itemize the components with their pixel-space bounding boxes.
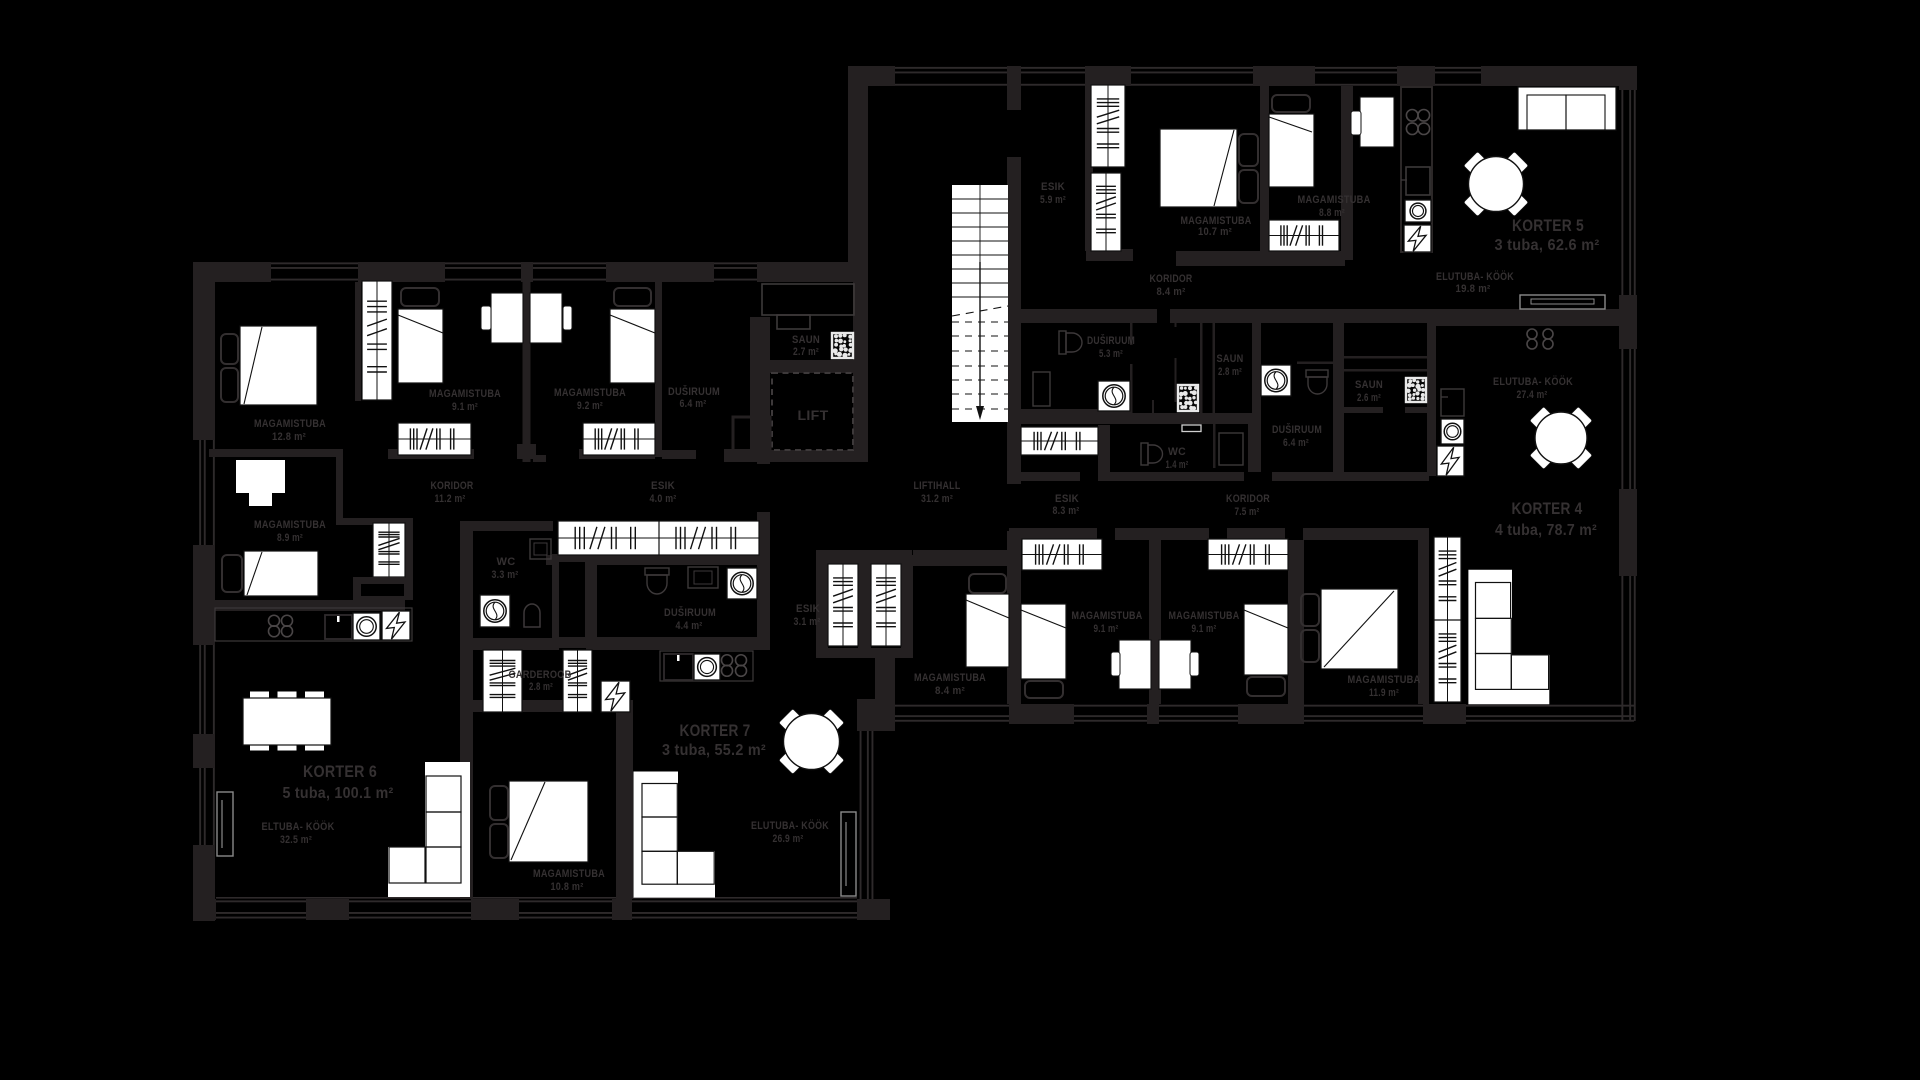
svg-text:3.3 m²: 3.3 m² (492, 569, 519, 581)
svg-text:8.4 m²: 8.4 m² (1157, 286, 1186, 298)
svg-text:11.2 m²: 11.2 m² (435, 493, 466, 505)
svg-text:11.9 m²: 11.9 m² (1369, 687, 1399, 699)
svg-text:10.7 m²: 10.7 m² (1198, 226, 1232, 238)
svg-text:DUŠIRUUM: DUŠIRUUM (664, 606, 716, 619)
svg-text:8.4 m²: 8.4 m² (935, 685, 965, 697)
svg-text:8.8 m²: 8.8 m² (1319, 207, 1345, 219)
svg-text:LIFT: LIFT (798, 408, 829, 423)
svg-text:KORIDOR: KORIDOR (431, 480, 474, 492)
svg-text:26.9 m²: 26.9 m² (773, 833, 804, 845)
svg-text:MAGAMISTUBA: MAGAMISTUBA (1298, 194, 1371, 206)
svg-text:6.4 m²: 6.4 m² (1283, 437, 1309, 449)
svg-text:MAGAMISTUBA: MAGAMISTUBA (914, 672, 986, 684)
svg-text:2.8 m²: 2.8 m² (529, 681, 553, 693)
svg-text:WC: WC (1168, 446, 1186, 458)
svg-text:WC: WC (497, 556, 516, 568)
svg-text:KORTER 6: KORTER 6 (303, 763, 377, 781)
svg-text:12.8 m²: 12.8 m² (272, 431, 306, 443)
svg-text:SAUN: SAUN (1217, 353, 1244, 365)
svg-text:ESIK: ESIK (796, 603, 820, 615)
svg-text:5.9 m²: 5.9 m² (1040, 194, 1066, 206)
svg-text:ELTUBA- KÖÖK: ELTUBA- KÖÖK (262, 820, 335, 833)
svg-text:ESIK: ESIK (651, 480, 675, 492)
svg-text:4 tuba, 78.7 m²: 4 tuba, 78.7 m² (1495, 522, 1597, 539)
svg-text:32.5 m²: 32.5 m² (280, 834, 312, 846)
svg-text:31.2 m²: 31.2 m² (921, 493, 953, 505)
svg-text:10.8 m²: 10.8 m² (551, 881, 584, 893)
svg-text:9.1 m²: 9.1 m² (1094, 623, 1119, 635)
svg-text:4.4 m²: 4.4 m² (676, 620, 703, 632)
svg-text:ELUTUBA- KÖÖK: ELUTUBA- KÖÖK (1436, 270, 1514, 283)
svg-text:9.2 m²: 9.2 m² (577, 400, 603, 412)
svg-text:GARDEROOB: GARDEROOB (509, 669, 572, 681)
svg-text:KORIDOR: KORIDOR (1226, 493, 1270, 505)
svg-text:KORTER 7: KORTER 7 (680, 722, 751, 740)
svg-text:6.4 m²: 6.4 m² (680, 398, 707, 410)
svg-text:MAGAMISTUBA: MAGAMISTUBA (1169, 610, 1240, 622)
svg-text:MAGAMISTUBA: MAGAMISTUBA (254, 418, 326, 430)
svg-text:ELUTUBA- KÖÖK: ELUTUBA- KÖÖK (1493, 375, 1573, 388)
svg-text:DUŠIRUUM: DUŠIRUUM (1087, 334, 1135, 347)
svg-text:5 tuba, 100.1 m²: 5 tuba, 100.1 m² (283, 785, 394, 802)
svg-text:7.5 m²: 7.5 m² (1235, 506, 1260, 518)
svg-text:MAGAMISTUBA: MAGAMISTUBA (1072, 610, 1143, 622)
svg-text:ESIK: ESIK (1041, 181, 1065, 193)
svg-text:DUŠIRUUM: DUŠIRUUM (1272, 423, 1322, 436)
svg-text:3.1 m²: 3.1 m² (794, 616, 821, 628)
svg-text:2.8 m²: 2.8 m² (1218, 366, 1242, 378)
svg-text:MAGAMISTUBA: MAGAMISTUBA (533, 868, 605, 880)
svg-text:KORTER 5: KORTER 5 (1512, 217, 1584, 235)
svg-text:8.9 m²: 8.9 m² (277, 532, 303, 544)
svg-text:KORIDOR: KORIDOR (1150, 273, 1193, 285)
svg-text:2.6 m²: 2.6 m² (1357, 392, 1381, 404)
svg-text:5.3 m²: 5.3 m² (1099, 348, 1123, 360)
svg-text:SAUN: SAUN (792, 334, 820, 346)
svg-text:MAGAMISTUBA: MAGAMISTUBA (429, 388, 501, 400)
svg-text:27.4 m²: 27.4 m² (1517, 389, 1548, 401)
svg-text:DUŠIRUUM: DUŠIRUUM (668, 385, 720, 398)
svg-text:MAGAMISTUBA: MAGAMISTUBA (554, 387, 626, 399)
svg-text:8.3 m²: 8.3 m² (1053, 505, 1080, 517)
svg-text:19.8 m²: 19.8 m² (1456, 283, 1491, 295)
svg-text:LIFTIHALL: LIFTIHALL (914, 480, 961, 492)
svg-text:4.0 m²: 4.0 m² (650, 493, 677, 505)
svg-text:ESIK: ESIK (1055, 493, 1079, 505)
svg-text:SAUN: SAUN (1355, 379, 1383, 391)
svg-text:9.1 m²: 9.1 m² (452, 401, 478, 413)
svg-text:2.7 m²: 2.7 m² (793, 346, 819, 358)
svg-text:1.4 m²: 1.4 m² (1166, 459, 1189, 471)
svg-text:MAGAMISTUBA: MAGAMISTUBA (1348, 674, 1421, 686)
svg-text:9.1 m²: 9.1 m² (1192, 623, 1217, 635)
svg-text:MAGAMISTUBA: MAGAMISTUBA (254, 519, 326, 531)
svg-text:KORTER 4: KORTER 4 (1512, 500, 1583, 518)
svg-text:3 tuba, 55.2 m²: 3 tuba, 55.2 m² (662, 742, 766, 759)
svg-text:ELUTUBA- KÖÖK: ELUTUBA- KÖÖK (751, 819, 829, 832)
svg-text:3 tuba, 62.6 m²: 3 tuba, 62.6 m² (1495, 237, 1600, 254)
